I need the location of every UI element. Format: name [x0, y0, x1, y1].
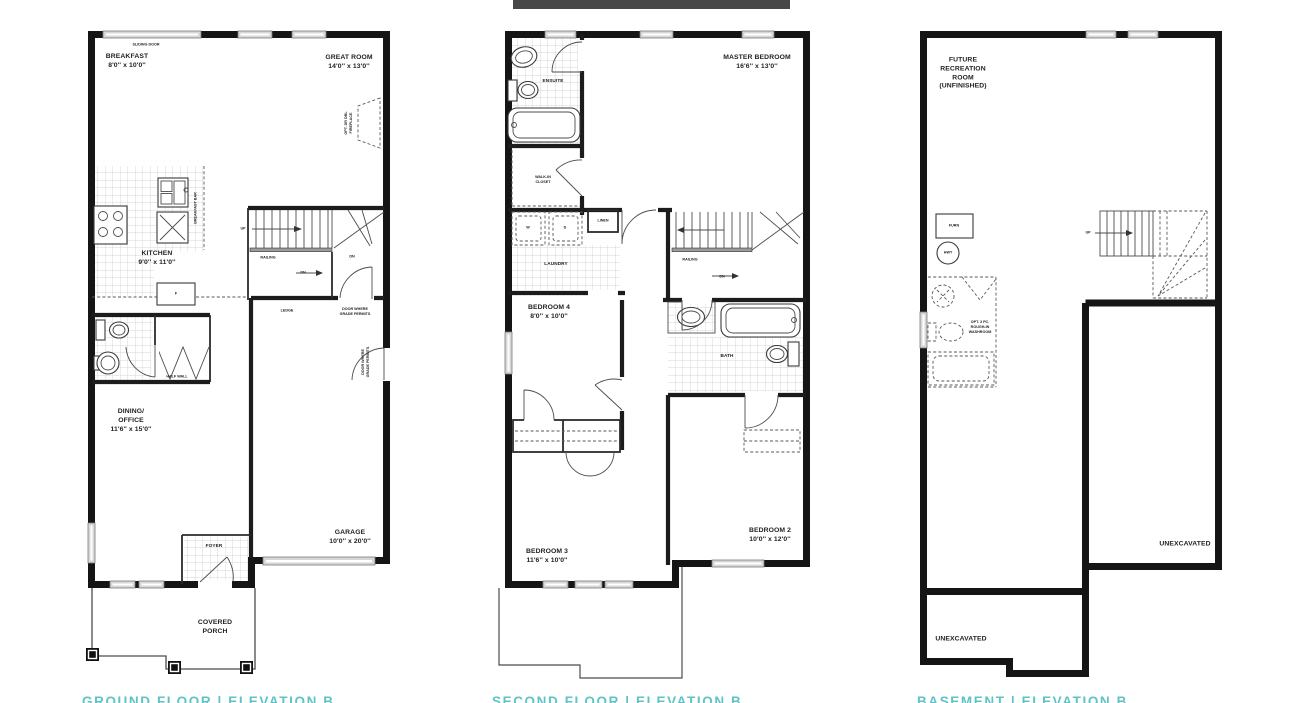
optional-fireplace: [358, 98, 380, 148]
label-railing: RAILING: [260, 256, 275, 261]
label-dn-lower: DN: [300, 271, 305, 276]
label-door-grade-top: DOOR WHERE GRADE PERMITS: [340, 307, 371, 317]
label-dn-2: DN: [719, 275, 724, 280]
label-covered-porch: COVERED PORCH: [198, 619, 232, 637]
label-kitchen: KITCHEN 9'0'' x 11'0'': [138, 250, 175, 268]
bathtub: [721, 304, 800, 337]
sink: [932, 285, 954, 307]
bathtub: [508, 108, 580, 142]
label-laundry: LAUNDRY: [544, 261, 567, 267]
label-furnace: FURN: [949, 224, 959, 229]
label-unexcavated-bottom: UNEXCAVATED: [935, 636, 986, 645]
exterior-walls: [924, 35, 1219, 674]
label-door-grade-side: DOOR WHERE GRADE PERMITS: [361, 347, 371, 378]
label-opt-washroom: OPT. 3 PC. ROUGH-IN WASHROOM: [969, 320, 992, 334]
windows: [88, 31, 375, 588]
stairs-down: [672, 212, 804, 279]
label-unexcavated-right: UNEXCAVATED: [1159, 541, 1210, 550]
label-water-heater: HWT: [944, 251, 952, 256]
label-dining-office: DINING/ OFFICE 11'6'' x 15'0'': [110, 408, 151, 434]
label-walk-in-closet: WALK-IN CLOSET: [535, 175, 551, 185]
label-washer: W: [526, 226, 529, 231]
toilet-tank: [508, 80, 517, 101]
label-sliding-door: SLIDING DOOR: [132, 43, 159, 48]
floorplan-sheet: SLIDING DOOR BREAKFAST 8'0'' x 10'0'' GR…: [0, 0, 1290, 703]
label-bedroom-3: BEDROOM 3 11'6'' x 10'0'': [526, 548, 568, 566]
second-floor-plan: [499, 0, 807, 678]
sink: [97, 352, 119, 374]
label-up: UP: [240, 227, 245, 232]
toilet-tank: [96, 320, 105, 340]
caption-second-floor: SECOND FLOOR | ELEVATION B: [492, 694, 742, 703]
bathtub: [928, 352, 994, 385]
kitchen-sink: [158, 178, 188, 207]
label-dryer: D: [564, 226, 567, 231]
toilet: [110, 322, 129, 338]
label-bath: BATH: [720, 353, 733, 359]
stove: [94, 206, 127, 244]
label-master-bedroom: MASTER BEDROOM 16'6'' x 13'0'': [723, 54, 790, 72]
label-bedroom-4: BEDROOM 4 8'0'' x 10'0'': [528, 304, 570, 322]
label-breakfast-bar: BREAKFAST BAR: [194, 192, 199, 224]
roof-ridge-bar: [513, 0, 790, 9]
label-bedroom-2: BEDROOM 2 10'0'' x 12'0'': [749, 527, 791, 545]
label-ensuite: ENSUITE: [542, 78, 563, 84]
label-fridge: F: [175, 292, 177, 297]
label-breakfast: BREAKFAST 8'0'' x 10'0'': [106, 53, 148, 71]
label-ledge: LEDGE: [281, 309, 294, 314]
floorplan-drawing: [0, 0, 1290, 703]
toilet: [939, 323, 963, 341]
label-up-3: UP: [1085, 231, 1090, 236]
label-railing-2: RAILING: [682, 258, 697, 263]
label-dn-upper: DN: [349, 255, 354, 260]
laundry-fixtures: [512, 212, 582, 245]
label-foyer: FOYER: [206, 543, 223, 549]
stairs-up: [1095, 211, 1207, 298]
interior-walls: [923, 303, 1218, 673]
caption-ground-floor: GROUND FLOOR | ELEVATION B: [82, 694, 335, 703]
label-future-rec-room: FUTURE RECREATION ROOM (UNFINISHED): [939, 56, 986, 91]
label-linen: LINEN: [597, 219, 608, 224]
label-garage: GARAGE 10'0'' x 20'0'': [329, 529, 370, 547]
toilet-tank: [788, 342, 799, 366]
label-opt-fireplace: OPT. DR DBL FIREPLACE: [344, 111, 354, 134]
caption-basement: BASEMENT | ELEVATION B: [917, 694, 1128, 703]
label-half-wall: HALF WALL: [166, 375, 187, 380]
basement-plan: [920, 31, 1219, 674]
stairs-up: [250, 210, 384, 276]
label-great-room: GREAT ROOM 14'0'' x 13'0'': [325, 54, 372, 72]
